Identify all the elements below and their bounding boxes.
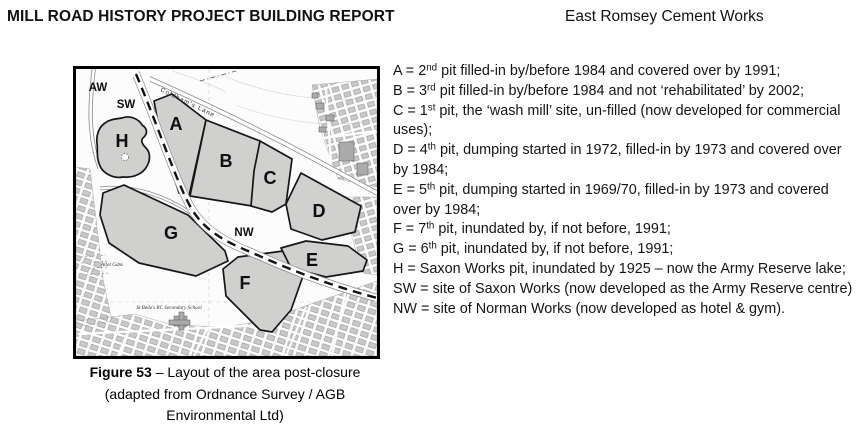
map-label-h: H bbox=[116, 131, 129, 151]
map-svg: A B C D G E F H AW SW NW Coldham's Lane … bbox=[76, 69, 377, 356]
legend-text: G = 6 bbox=[393, 241, 429, 257]
legend-text: F = 7 bbox=[393, 221, 426, 237]
legend-text: pit, inundated by, if not before, 1991; bbox=[434, 221, 671, 237]
legend-text: pit, dumping started in 1969/70, filled-… bbox=[393, 182, 829, 218]
legend-sup: th bbox=[427, 181, 435, 192]
map-label-d: D bbox=[313, 201, 326, 221]
lake-island bbox=[122, 154, 129, 161]
legend-entry-a: A = 2nd pit filled-in by/before 1984 and… bbox=[393, 62, 857, 82]
map-label-nw: NW bbox=[234, 227, 253, 239]
legend-text: NW = site of Norman Works (now developed… bbox=[393, 301, 785, 317]
legend-sup: th bbox=[428, 142, 436, 153]
legend-text: pit filled-in by/before 1984 and not ‘re… bbox=[436, 83, 804, 99]
map-label-aw: AW bbox=[89, 82, 108, 94]
map-label-e: E bbox=[306, 250, 318, 270]
school-label: St Bede's RC Secondary School bbox=[136, 305, 202, 311]
legend-text: pit, the ‘wash mill’ site, un-filled (no… bbox=[393, 103, 840, 139]
report-title: MILL ROAD HISTORY PROJECT BUILDING REPOR… bbox=[7, 8, 395, 26]
document-title: East Romsey Cement Works bbox=[565, 8, 764, 26]
legend-entry-sw: SW = site of Saxon Works (now developed … bbox=[393, 280, 857, 300]
map-label-g: G bbox=[164, 223, 178, 243]
legend-sup: th bbox=[429, 241, 437, 252]
map-label-a: A bbox=[170, 114, 183, 134]
legend-text: A = 2 bbox=[393, 63, 426, 79]
map-label-c: C bbox=[264, 168, 277, 188]
report-page: { "header": { "left_title": "MILL ROAD H… bbox=[0, 0, 857, 440]
legend-entry-h: H = Saxon Works pit, inundated by 1925 –… bbox=[393, 260, 857, 280]
map-label-b: B bbox=[220, 151, 233, 171]
legend-text: H = Saxon Works pit, inundated by 1925 –… bbox=[393, 261, 846, 277]
legend-block: A = 2nd pit filled-in by/before 1984 and… bbox=[393, 62, 857, 319]
legend-text: D = 4 bbox=[393, 142, 428, 158]
figure-caption: Figure 53 – Layout of the area post-clos… bbox=[64, 362, 386, 427]
legend-entry-b: B = 3rd pit filled-in by/before 1984 and… bbox=[393, 82, 857, 102]
legend-text: pit, inundated by, if not before, 1991; bbox=[437, 241, 674, 257]
figure-label: Figure 53 bbox=[90, 364, 152, 380]
legend-entry-e: E = 5th pit, dumping started in 1969/70,… bbox=[393, 181, 857, 221]
legend-sup: rd bbox=[427, 82, 436, 93]
legend-text: B = 3 bbox=[393, 83, 427, 99]
legend-entry-d: D = 4th pit, dumping started in 1972, fi… bbox=[393, 141, 857, 181]
legend-entry-c: C = 1st pit, the ‘wash mill’ site, un-fi… bbox=[393, 102, 857, 142]
legend-entry-g: G = 6th pit, inundated by, if not before… bbox=[393, 240, 857, 260]
allotment-gardens-label: Allot Gdns bbox=[100, 262, 123, 268]
legend-entry-f: F = 7th pit, inundated by, if not before… bbox=[393, 220, 857, 240]
figure-map: A B C D G E F H AW SW NW Coldham's Lane … bbox=[73, 66, 380, 359]
legend-sup: nd bbox=[426, 63, 437, 74]
legend-text: pit filled-in by/before 1984 and covered… bbox=[437, 63, 780, 79]
legend-text: SW = site of Saxon Works (now developed … bbox=[393, 281, 852, 297]
map-label-f: F bbox=[240, 273, 251, 293]
legend-text: E = 5 bbox=[393, 182, 427, 198]
legend-text: pit, dumping started in 1972, filled-in … bbox=[393, 142, 842, 178]
legend-entry-nw: NW = site of Norman Works (now developed… bbox=[393, 300, 857, 320]
legend-text: C = 1 bbox=[393, 103, 428, 119]
map-label-sw: SW bbox=[117, 99, 136, 111]
